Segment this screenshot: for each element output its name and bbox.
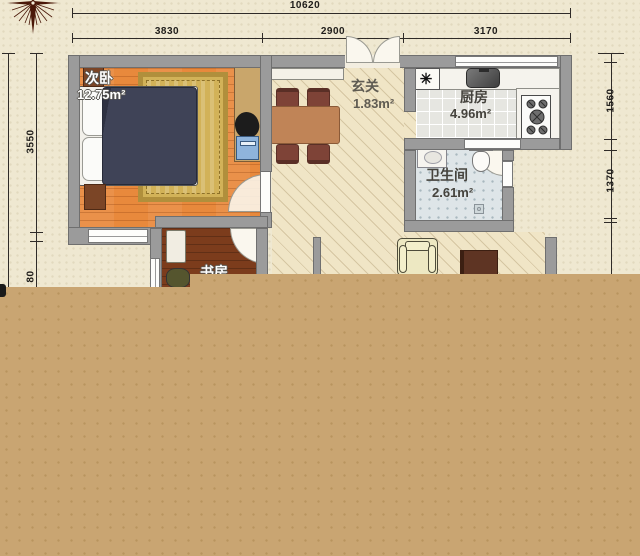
window-study-west [150, 258, 160, 292]
window-line [155, 259, 156, 291]
kitchen-door-leaf [464, 139, 521, 149]
dim-total-label: 10620 [281, 0, 329, 11]
wall-left [68, 55, 80, 245]
wall-bathroom-right-upper [502, 150, 514, 161]
faucet-icon [479, 68, 489, 72]
dining-chair [307, 88, 330, 108]
dim-tick [570, 33, 571, 43]
dim-tick [30, 232, 43, 233]
entry-cabinet [271, 68, 344, 80]
window-bedroom-south [88, 229, 148, 243]
dim-tick [403, 33, 404, 43]
bedroom-door-leaf [260, 171, 271, 213]
compass-rose-icon [2, 0, 64, 38]
wall-building-right [560, 55, 572, 150]
dim-3170-label: 3170 [464, 26, 508, 37]
stove-burners-icon [522, 96, 550, 138]
dim-1560-label: 1560 [606, 81, 617, 121]
entry-area: 1.83m² [353, 96, 394, 111]
armchair-back [405, 241, 430, 251]
dining-chair [276, 88, 299, 108]
dim-tick [604, 222, 617, 223]
bathroom-label: 卫生间 [426, 165, 468, 185]
kitchen-label: 厨房 [460, 87, 488, 107]
floor-plan: 10620 3830 2900 3170 3550 80 1560 1370 [0, 0, 640, 556]
wall-bedroom-right-upper [260, 55, 272, 172]
bedroom-label: 次卧 [85, 68, 113, 88]
window-kitchen [455, 56, 558, 67]
dim-tick [30, 53, 43, 54]
bathroom-area: 2.61m² [432, 185, 473, 200]
kitchen-area: 4.96m² [450, 106, 491, 121]
vanity-basin [424, 151, 442, 164]
entry-label: 玄关 [351, 76, 379, 96]
dim-3550-label: 3550 [26, 122, 37, 162]
appliance-box: ✳ [412, 68, 440, 90]
nightstand [84, 184, 106, 210]
dim-line-segments [72, 38, 570, 39]
dim-tick [262, 33, 263, 43]
printer-detail [240, 141, 256, 146]
entry-door-arc-left [346, 36, 373, 63]
dim-tick [604, 218, 617, 219]
window-line [89, 236, 147, 237]
wall-bathroom-bottom [404, 220, 514, 232]
dim-tick [598, 53, 624, 54]
bedroom-area: 12.75m² [77, 87, 125, 102]
study-cabinet [166, 230, 186, 263]
dim-1370-label: 1370 [606, 161, 617, 201]
stove [521, 95, 551, 139]
printer [236, 136, 259, 160]
wall-study-top [155, 216, 268, 228]
floor-drain-circle [477, 207, 481, 211]
dim-tick [604, 62, 617, 63]
dim-tick [604, 150, 617, 151]
window-line [456, 62, 557, 63]
dim-tick [72, 33, 73, 43]
floor-drain-icon [474, 204, 484, 214]
dim-line-left-outer [8, 53, 9, 291]
overlay-block [0, 274, 640, 556]
dim-tick [2, 53, 15, 54]
dim-tick [570, 8, 571, 18]
kitchen-entrance-floor [404, 112, 416, 138]
dim-80-label: 80 [26, 267, 37, 287]
edge-artifact-mark [0, 284, 6, 297]
toilet-bowl [472, 151, 490, 172]
dim-3830-label: 3830 [145, 26, 189, 37]
dim-tick [30, 241, 43, 242]
dining-chair [307, 144, 330, 164]
dim-line-left-inner [36, 53, 37, 291]
armchair [397, 238, 438, 276]
dim-line-total [72, 13, 570, 14]
dining-table [270, 106, 340, 144]
wall-kitchen-left [404, 68, 416, 112]
bathroom-door-leaf [502, 161, 513, 187]
armchair-arm [428, 245, 436, 273]
appliance-marker-icon: ✳ [420, 71, 433, 88]
entry-door-arc-right [373, 36, 400, 63]
dining-chair [276, 144, 299, 164]
dim-tick [72, 8, 73, 18]
study-plant [166, 268, 190, 288]
dim-tick [604, 139, 617, 140]
armchair-arm [399, 245, 407, 273]
